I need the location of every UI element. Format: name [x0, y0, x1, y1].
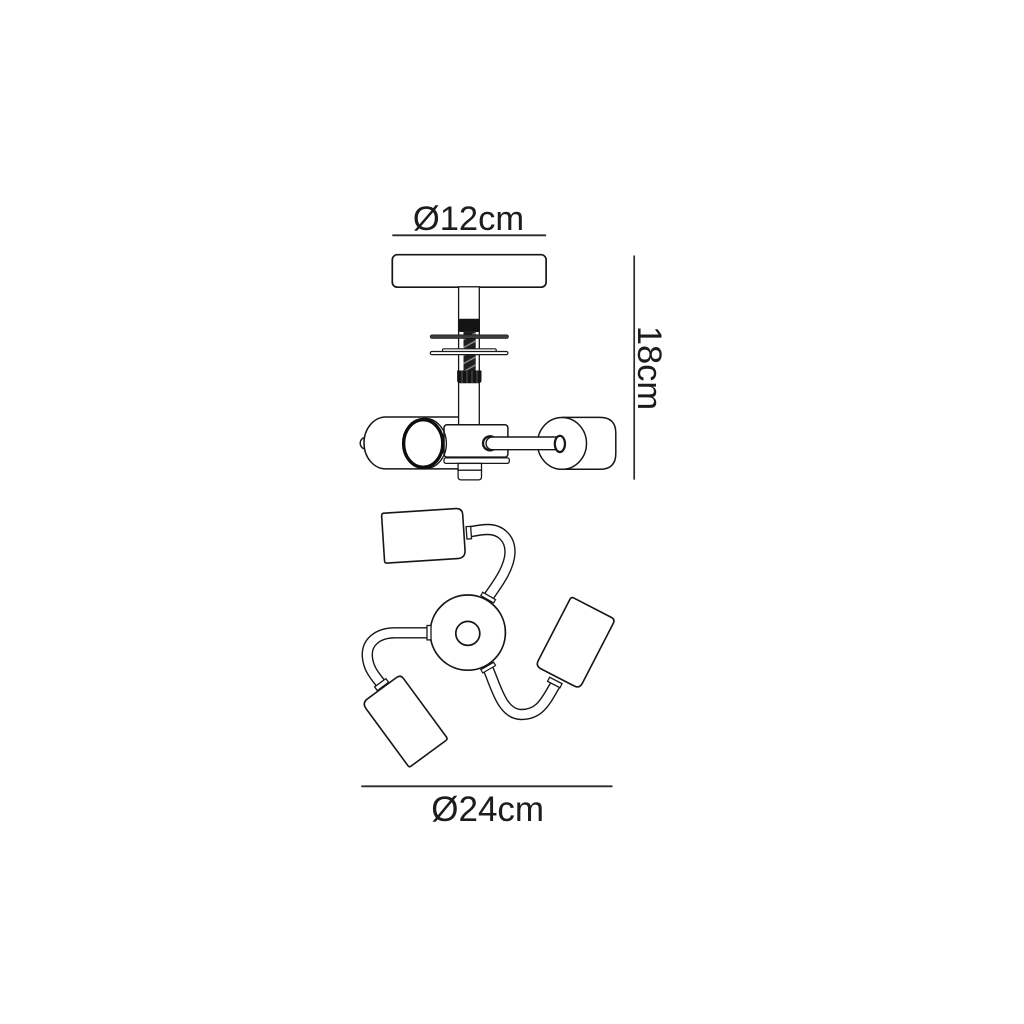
svg-text:18cm: 18cm [630, 326, 668, 410]
svg-text:Ø12cm: Ø12cm [413, 200, 524, 238]
svg-text:Ø24cm: Ø24cm [431, 790, 544, 829]
